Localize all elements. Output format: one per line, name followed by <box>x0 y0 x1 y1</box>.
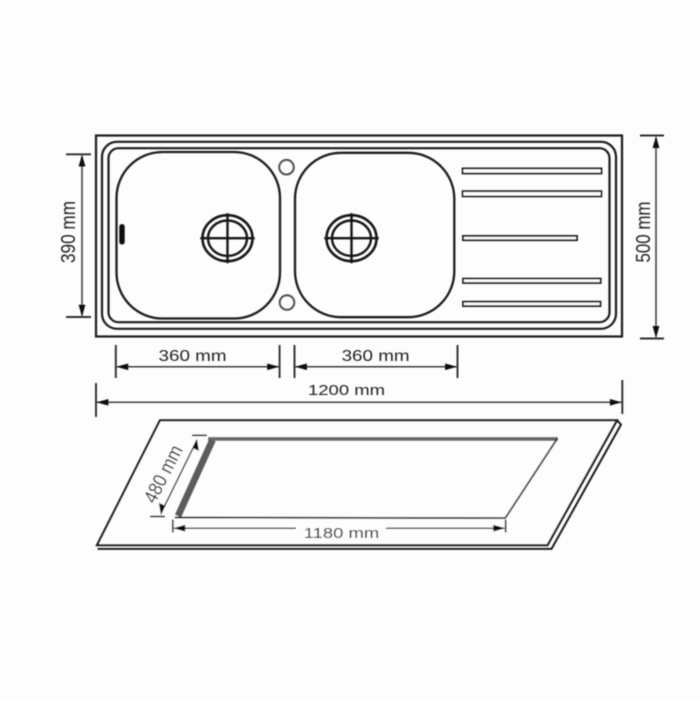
svg-text:500 mm: 500 mm <box>632 202 655 263</box>
svg-text:360 mm: 360 mm <box>159 348 227 365</box>
svg-text:1200 mm: 1200 mm <box>308 382 385 399</box>
svg-text:390 mm: 390 mm <box>57 201 80 263</box>
svg-text:1180 mm: 1180 mm <box>304 525 380 542</box>
svg-text:360 mm: 360 mm <box>342 348 410 365</box>
